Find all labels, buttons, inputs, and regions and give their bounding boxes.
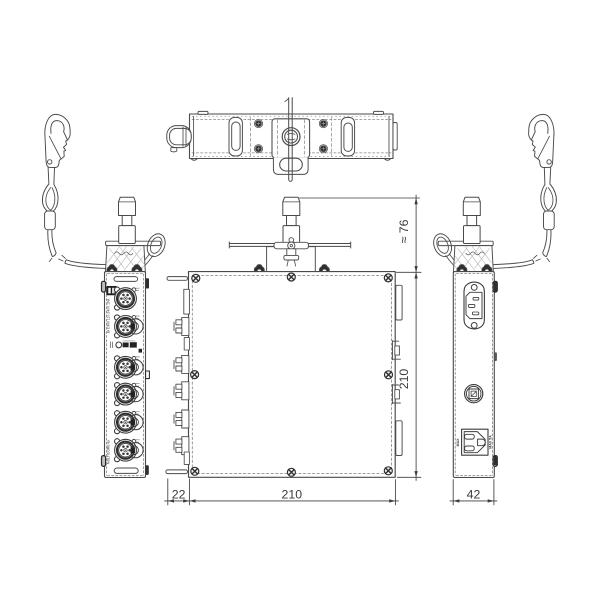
svg-text:22: 22 <box>172 487 186 501</box>
svg-text:42: 42 <box>467 488 481 502</box>
svg-text:210: 210 <box>397 369 411 390</box>
svg-text:8x DMX 110-240V 16A: 8x DMX 110-240V 16A <box>106 298 110 333</box>
svg-text:≈ 76: ≈ 76 <box>397 219 411 243</box>
svg-text:MAX: MAX <box>456 438 460 447</box>
svg-text:MAX 5A: MAX 5A <box>488 435 492 449</box>
svg-text:210: 210 <box>282 488 303 502</box>
svg-text:MULTICORE 8x: MULTICORE 8x <box>106 440 110 465</box>
